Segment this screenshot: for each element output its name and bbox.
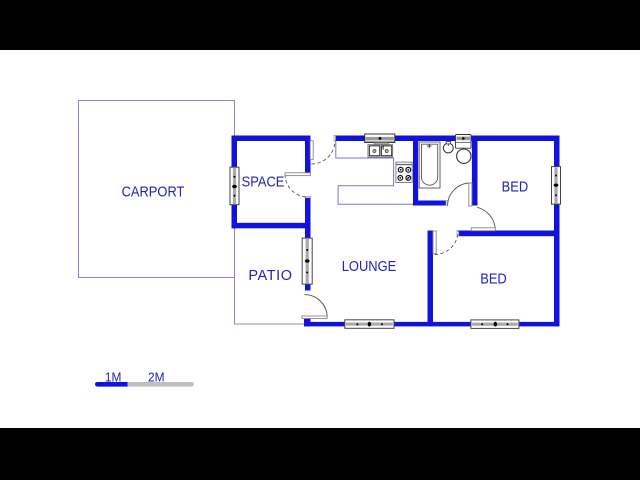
svg-text:CARPORT: CARPORT <box>122 184 185 200</box>
svg-text:BED: BED <box>502 179 529 195</box>
svg-text:PATIO: PATIO <box>248 268 292 284</box>
svg-text:SPACE: SPACE <box>242 174 285 190</box>
svg-text:2M: 2M <box>148 370 165 384</box>
svg-text:1M: 1M <box>105 370 122 384</box>
svg-text:LOUNGE: LOUNGE <box>342 258 396 274</box>
svg-text:BED: BED <box>480 271 507 287</box>
